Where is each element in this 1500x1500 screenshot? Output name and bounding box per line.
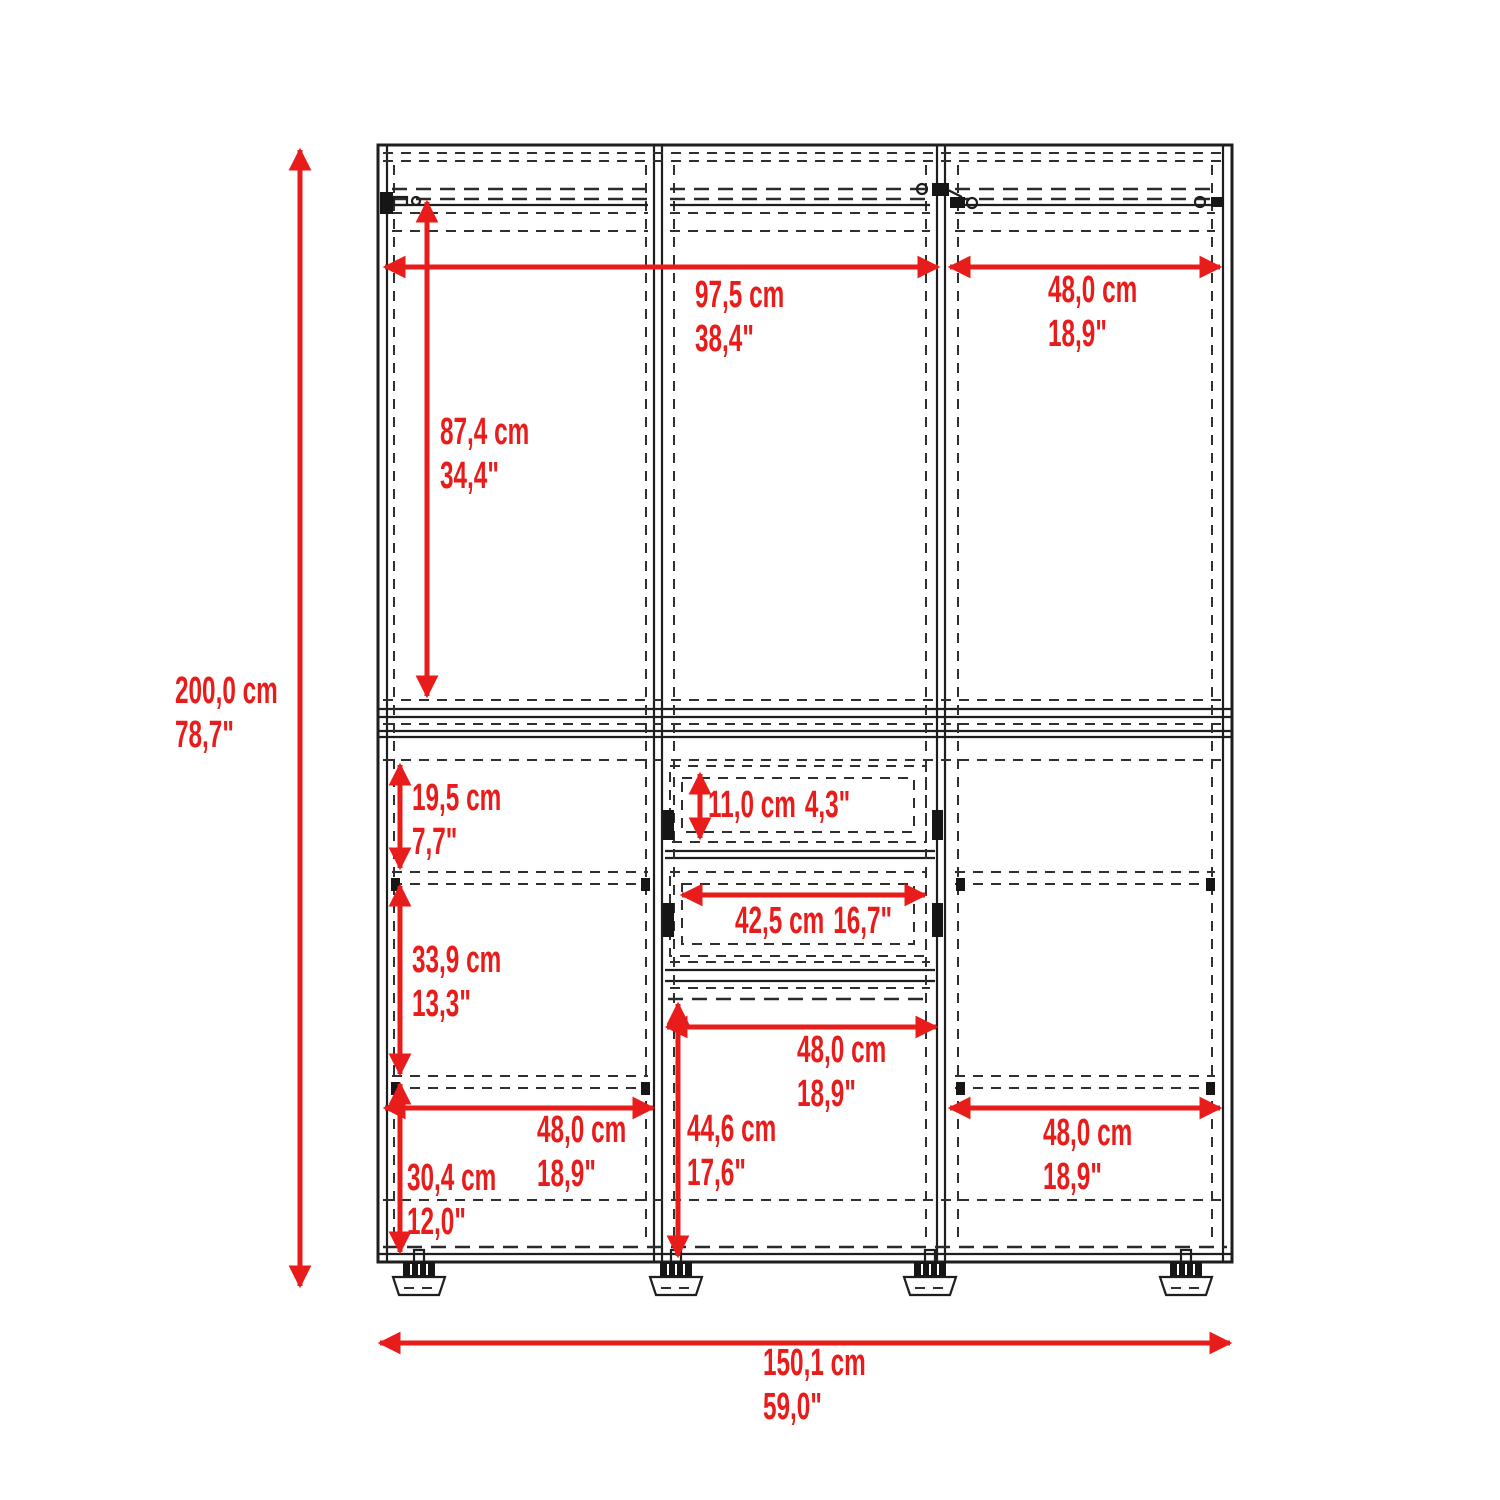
center-opening-height-label: 44,6 cm 17,6": [687, 1107, 776, 1195]
dimension-inches: 18,9": [1048, 312, 1137, 356]
center-opening-width-label: 48,0 cm 18,9": [797, 1028, 886, 1116]
dimension-inches: 18,9": [1043, 1155, 1132, 1199]
foot: [393, 1250, 445, 1295]
dimension-cm: 97,5 cm: [695, 273, 784, 317]
drawer-slide: [932, 810, 943, 840]
dimension-inches: 34,4": [440, 454, 529, 498]
dimension-inches: 16,7": [833, 900, 892, 942]
drawer-slide: [663, 903, 674, 937]
foot: [904, 1250, 956, 1295]
dimension-inches: 4,3": [805, 784, 850, 826]
foot: [650, 1250, 702, 1295]
dimension-inches: 12,0": [407, 1200, 496, 1244]
dimension-cm: 200,0 cm: [175, 669, 278, 713]
dimension-inches: 17,6": [687, 1151, 776, 1195]
dimension-inches: 18,9": [797, 1072, 886, 1116]
dimension-inches: 38,4": [695, 317, 784, 361]
dimension-inches: 13,3": [412, 982, 501, 1026]
drawer-width-label: 42,5 cm16,7": [735, 899, 892, 943]
overall-height-label: 200,0 cm 78,7": [175, 669, 278, 757]
lower-left-width-label: 48,0 cm 18,9": [537, 1108, 626, 1196]
dimension-cm: 48,0 cm: [797, 1028, 886, 1072]
dimension-inches: 78,7": [175, 713, 278, 757]
upper-right-width-label: 48,0 cm 18,9": [1048, 268, 1137, 356]
dimension-cm: 87,4 cm: [440, 410, 529, 454]
dimension-cm: 11,0 cm: [708, 784, 796, 826]
middle-shelf-space-height-label: 33,9 cm 13,3": [412, 938, 501, 1026]
upper-opening-width-label: 97,5 cm 38,4": [695, 273, 784, 361]
dimension-cm: 44,6 cm: [687, 1107, 776, 1151]
dimension-cm: 48,0 cm: [1043, 1111, 1132, 1155]
hanging-rods: [392, 189, 1215, 205]
lower-shelf-space-height-label: 30,4 cm 12,0": [407, 1156, 496, 1244]
feet: [393, 1250, 1212, 1295]
lower-right-width-label: 48,0 cm 18,9": [1043, 1111, 1132, 1199]
dimension-cm: 48,0 cm: [1048, 268, 1137, 312]
dimension-cm: 33,9 cm: [412, 938, 501, 982]
dimension-cm: 48,0 cm: [537, 1108, 626, 1152]
drawer-height-label: 11,0 cm4,3": [708, 783, 850, 827]
dimension-inches: 59,0": [763, 1385, 866, 1429]
dimension-inches: 7,7": [412, 820, 501, 864]
wardrobe-dimension-diagram: 200,0 cm 78,7" 150,1 cm 59,0" 97,5 cm 38…: [0, 0, 1500, 1500]
dimension-cm: 19,5 cm: [412, 776, 501, 820]
dimension-cm: 42,5 cm: [735, 900, 824, 942]
foot: [1160, 1250, 1212, 1295]
upper-shelf-space-height-label: 19,5 cm 7,7": [412, 776, 501, 864]
dimension-inches: 18,9": [537, 1152, 626, 1196]
dimension-cm: 150,1 cm: [763, 1341, 866, 1385]
upper-section-height-label: 87,4 cm 34,4": [440, 410, 529, 498]
dimension-cm: 30,4 cm: [407, 1156, 496, 1200]
drawer-slide: [663, 810, 674, 840]
drawer-slide: [932, 903, 943, 937]
overall-width-label: 150,1 cm 59,0": [763, 1341, 866, 1429]
